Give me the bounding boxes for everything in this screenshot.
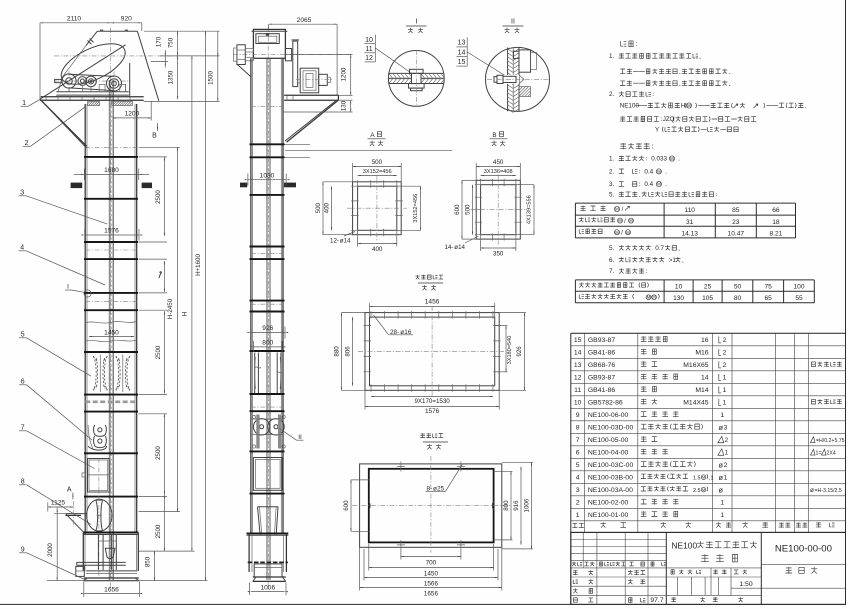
svg-text:M: M (652, 295, 656, 300)
svg-text:M: M (615, 230, 619, 235)
svg-text:850: 850 (144, 556, 151, 567)
svg-text:1350: 1350 (168, 70, 175, 84)
svg-text:3X136=408: 3X136=408 (484, 169, 513, 175)
svg-text:8: 8 (576, 424, 580, 431)
svg-text:I: I (67, 284, 69, 291)
svg-text:66: 66 (772, 207, 780, 214)
svg-text:M: M (657, 182, 661, 187)
svg-text:=H-3.15/2.5: =H-3.15/2.5 (815, 488, 842, 494)
svg-text:80: 80 (734, 295, 742, 302)
svg-text:2: 2 (725, 437, 729, 444)
svg-text:8.21: 8.21 (769, 230, 782, 237)
svg-text:926: 926 (262, 325, 273, 332)
svg-text:13: 13 (574, 362, 582, 369)
svg-text:2065: 2065 (297, 17, 312, 24)
svg-text:I: I (415, 19, 417, 26)
svg-text:NE100-06-00: NE100-06-00 (588, 412, 629, 419)
svg-text:A: A (67, 487, 72, 494)
svg-text:H+1600: H+1600 (195, 254, 202, 276)
svg-text:75: 75 (765, 284, 773, 291)
svg-text:1200: 1200 (125, 111, 140, 118)
svg-text:GB68-76: GB68-76 (588, 362, 615, 369)
svg-text:700: 700 (426, 560, 437, 567)
svg-text:ø: ø (810, 487, 814, 494)
svg-text:2: 2 (723, 350, 727, 357)
svg-text:1: 1 (723, 375, 727, 382)
svg-text:2000: 2000 (47, 543, 54, 557)
svg-text:11: 11 (365, 46, 372, 53)
svg-text:ø: ø (719, 485, 724, 494)
svg-text:10: 10 (574, 399, 582, 406)
svg-text:.: . (665, 181, 667, 188)
svg-text:130: 130 (341, 100, 348, 111)
svg-text:55: 55 (795, 295, 803, 302)
svg-text:350: 350 (493, 251, 504, 258)
svg-text:1: 1 (725, 450, 729, 457)
svg-text:M: M (618, 218, 622, 223)
svg-text:3X152=456: 3X152=456 (363, 169, 392, 175)
svg-text:.: . (665, 168, 667, 175)
svg-text:II: II (511, 19, 515, 26)
svg-text:NE100-02-00: NE100-02-00 (588, 499, 629, 506)
svg-text:85: 85 (732, 207, 740, 214)
svg-text:1: 1 (576, 512, 580, 519)
svg-text:130: 130 (673, 295, 684, 302)
svg-text:1450: 1450 (104, 330, 119, 337)
svg-text:12-: 12- (330, 237, 339, 244)
svg-text:750: 750 (168, 37, 175, 48)
svg-text:1006: 1006 (523, 498, 530, 512)
svg-text:B: B (492, 132, 496, 139)
svg-text:600: 600 (454, 204, 461, 215)
svg-text:2: 2 (576, 499, 580, 506)
svg-text:NE100-01-00: NE100-01-00 (588, 512, 629, 519)
svg-text:,1: ,1 (709, 475, 714, 481)
svg-text:3: 3 (576, 487, 580, 494)
svg-text:M: M (702, 487, 705, 492)
svg-text:GB93-87: GB93-87 (588, 337, 615, 344)
svg-text:10: 10 (675, 284, 683, 291)
svg-text:1450: 1450 (424, 571, 439, 578)
svg-text:1006: 1006 (260, 584, 275, 591)
svg-text:5.: 5. (609, 191, 615, 198)
svg-text:1576: 1576 (104, 228, 119, 235)
svg-text:9: 9 (576, 412, 580, 419)
svg-text:M: M (702, 475, 705, 480)
svg-text:1: 1 (720, 512, 724, 519)
svg-text:4X139=556: 4X139=556 (526, 195, 532, 224)
svg-text:5.: 5. (609, 245, 615, 252)
svg-text:M14X45: M14X45 (683, 399, 709, 406)
svg-text:0.4: 0.4 (644, 168, 653, 175)
svg-text:28-: 28- (390, 329, 399, 336)
svg-text:1.: 1. (609, 53, 615, 60)
svg-text:97.7: 97.7 (650, 597, 663, 604)
svg-text:170: 170 (155, 36, 162, 47)
svg-text:600: 600 (343, 500, 350, 511)
svg-text:14-: 14- (445, 244, 454, 251)
svg-text:1.5: 1.5 (693, 475, 701, 481)
svg-text:M: M (670, 156, 674, 161)
svg-text:NE100: NE100 (620, 103, 640, 110)
svg-text:50: 50 (734, 284, 742, 291)
svg-text:105: 105 (702, 295, 713, 302)
svg-text:2.5: 2.5 (693, 488, 701, 494)
svg-text:3.: 3. (609, 181, 615, 188)
svg-text:1: 1 (720, 499, 724, 506)
svg-text:GB5782-86: GB5782-86 (588, 399, 623, 406)
svg-text:1680: 1680 (104, 167, 119, 174)
svg-text:500: 500 (372, 159, 383, 166)
svg-text:0.7: 0.7 (655, 245, 664, 252)
svg-text:2500: 2500 (155, 190, 162, 204)
svg-text:1.: 1. (609, 156, 615, 163)
svg-text:500: 500 (465, 204, 472, 215)
svg-text:25: 25 (704, 284, 712, 291)
svg-text:M: M (626, 230, 630, 235)
svg-text:NE100-03C-00: NE100-03C-00 (588, 462, 634, 469)
svg-text:100: 100 (793, 284, 804, 291)
svg-text:500: 500 (315, 202, 322, 213)
svg-text:2.: 2. (609, 168, 615, 175)
svg-text:H: H (182, 312, 189, 316)
svg-text:10.47: 10.47 (728, 230, 745, 237)
svg-text:2: 2 (724, 462, 728, 469)
svg-text:10: 10 (365, 37, 373, 44)
svg-text:110: 110 (684, 207, 695, 214)
svg-text:1125: 1125 (51, 500, 66, 507)
svg-text:NE100-03D-00: NE100-03D-00 (588, 424, 634, 431)
svg-text:1: 1 (22, 100, 26, 107)
svg-text:M: M (615, 207, 619, 212)
svg-text:6.: 6. (609, 257, 615, 264)
svg-text:7.: 7. (609, 268, 615, 275)
svg-text:NE100: NE100 (672, 541, 698, 551)
svg-text:GB41-86: GB41-86 (588, 387, 615, 394)
svg-text:NE100-03B-00: NE100-03B-00 (588, 474, 633, 481)
svg-text:1030: 1030 (260, 172, 275, 179)
svg-text:2.: 2. (609, 91, 615, 98)
svg-text:H-2450: H-2450 (167, 298, 174, 319)
svg-text:1: 1 (723, 387, 727, 394)
svg-text:1: 1 (724, 475, 728, 482)
svg-text:M: M (657, 169, 661, 174)
svg-text:6: 6 (576, 449, 580, 456)
svg-text:4: 4 (576, 474, 580, 481)
svg-text:.: . (678, 156, 680, 163)
svg-text:1: 1 (720, 412, 724, 419)
svg-text:14: 14 (701, 374, 709, 381)
svg-text:NE100-00-00: NE100-00-00 (775, 544, 832, 555)
svg-text:13: 13 (458, 40, 466, 47)
svg-text:1656: 1656 (424, 591, 439, 598)
svg-text:15: 15 (574, 337, 582, 344)
svg-text:NE100-04-00: NE100-04-00 (588, 449, 629, 456)
svg-text:806: 806 (345, 346, 352, 357)
svg-text:2500: 2500 (155, 446, 162, 460)
svg-text:5: 5 (576, 462, 580, 469)
svg-text:1200: 1200 (341, 67, 348, 81)
svg-text:2500: 2500 (155, 524, 162, 538)
svg-text:1566: 1566 (424, 581, 439, 588)
svg-text:12: 12 (365, 55, 373, 62)
svg-text:920: 920 (121, 16, 132, 23)
svg-text:2110: 2110 (67, 16, 82, 23)
svg-text:16: 16 (404, 329, 412, 336)
svg-text:18: 18 (772, 219, 780, 226)
svg-text:=H/0.2+5.75: =H/0.2+5.75 (816, 438, 845, 444)
svg-text:14: 14 (458, 49, 466, 56)
svg-text:65: 65 (765, 295, 773, 302)
svg-text:14: 14 (574, 349, 582, 356)
svg-text:1=: 1= (816, 450, 822, 456)
svg-text:M: M (647, 295, 651, 300)
svg-text:2X4: 2X4 (827, 450, 836, 456)
svg-text:NE100-05-00: NE100-05-00 (588, 437, 629, 444)
svg-text:23: 23 (732, 219, 740, 226)
svg-text:M: M (629, 218, 633, 223)
svg-text:7: 7 (576, 437, 580, 444)
svg-text:M14: M14 (695, 387, 708, 394)
svg-text:1576: 1576 (425, 408, 440, 415)
svg-text:B: B (152, 133, 157, 140)
svg-text:0.4: 0.4 (644, 181, 653, 188)
svg-text:M16X65: M16X65 (683, 362, 709, 369)
svg-text:>1: >1 (669, 257, 677, 264)
svg-text:800: 800 (503, 500, 510, 511)
svg-text:14.13: 14.13 (681, 230, 698, 237)
svg-text:14: 14 (344, 237, 351, 244)
svg-text:3X180=540: 3X180=540 (507, 336, 513, 365)
svg-text:GB41-86: GB41-86 (588, 349, 615, 356)
svg-text:2: 2 (723, 337, 727, 344)
svg-text:800: 800 (262, 340, 273, 347)
svg-text:14: 14 (458, 244, 465, 251)
svg-text:1656: 1656 (104, 586, 119, 593)
svg-text:916: 916 (513, 500, 520, 511)
svg-text:15: 15 (458, 59, 466, 66)
svg-text:400: 400 (372, 246, 383, 253)
svg-text:0.033: 0.033 (651, 156, 667, 163)
svg-text:9X170=1530: 9X170=1530 (414, 398, 450, 405)
svg-text:NE100-03A-00: NE100-03A-00 (588, 487, 633, 494)
svg-text:1500: 1500 (207, 71, 214, 85)
svg-text:3X152=456: 3X152=456 (413, 194, 419, 223)
svg-text:16: 16 (701, 337, 709, 344)
svg-text:2: 2 (723, 362, 727, 369)
svg-text:1:50: 1:50 (739, 581, 752, 588)
svg-text:2500: 2500 (155, 345, 162, 359)
svg-text:1456: 1456 (425, 299, 440, 306)
svg-text:450: 450 (493, 159, 504, 166)
svg-text:1: 1 (723, 400, 727, 407)
svg-text:400: 400 (324, 202, 331, 213)
svg-text:880: 880 (334, 346, 341, 357)
svg-text:GB93-87: GB93-87 (588, 374, 615, 381)
svg-text:926: 926 (516, 346, 523, 357)
svg-text:31: 31 (686, 219, 694, 226)
svg-text:M: M (687, 103, 691, 108)
svg-text:11: 11 (574, 387, 581, 394)
svg-text:12: 12 (574, 374, 582, 381)
svg-text:3: 3 (724, 425, 728, 432)
svg-text:M16: M16 (695, 349, 708, 356)
